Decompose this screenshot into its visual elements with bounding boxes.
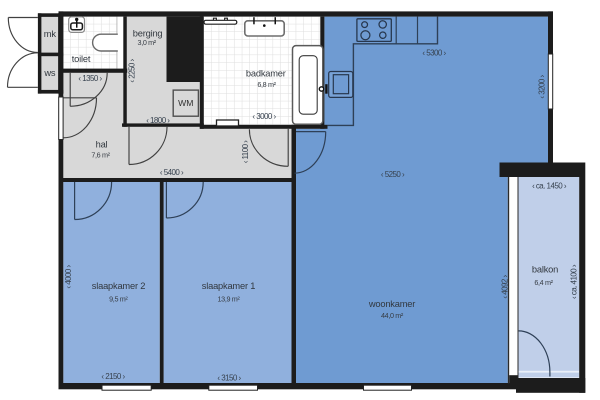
svg-text:‹ 5300 ›: ‹ 5300 › [422, 49, 446, 58]
svg-text:‹ 3000 ›: ‹ 3000 › [252, 112, 276, 121]
svg-text:‹ 3150 ›: ‹ 3150 › [217, 373, 241, 382]
svg-text:slaapkamer 2: slaapkamer 2 [92, 281, 145, 291]
svg-text:‹ ca. 4100 ›: ‹ ca. 4100 › [570, 264, 579, 299]
svg-text:badkamer: badkamer [246, 69, 286, 79]
svg-text:‹ 1350 ›: ‹ 1350 › [78, 74, 102, 83]
svg-text:WM: WM [178, 98, 193, 108]
svg-text:‹ 4092 ›: ‹ 4092 › [500, 275, 509, 299]
svg-text:balkon: balkon [532, 265, 558, 275]
svg-text:berging: berging [133, 28, 163, 38]
svg-text:ws: ws [43, 68, 56, 78]
svg-text:‹ ca. 1450 ›: ‹ ca. 1450 › [532, 182, 567, 191]
svg-text:44,0 m²: 44,0 m² [381, 311, 404, 320]
svg-text:‹ 2150 ›: ‹ 2150 › [101, 372, 125, 381]
svg-text:hal: hal [96, 140, 108, 150]
svg-text:mk: mk [44, 29, 57, 39]
svg-text:3,0 m²: 3,0 m² [138, 38, 157, 47]
svg-text:woonkamer: woonkamer [368, 299, 415, 309]
svg-text:13,9 m²: 13,9 m² [218, 294, 241, 303]
svg-text:‹ 1800 ›: ‹ 1800 › [146, 116, 170, 125]
svg-text:‹ 2250 ›: ‹ 2250 › [128, 59, 137, 83]
svg-text:‹ 4000 ›: ‹ 4000 › [64, 265, 73, 289]
svg-text:‹ 5250 ›: ‹ 5250 › [381, 170, 405, 179]
svg-text:6,4 m²: 6,4 m² [534, 278, 553, 287]
svg-text:‹ 1100 ›: ‹ 1100 › [241, 140, 250, 163]
svg-text:toilet: toilet [72, 54, 91, 64]
svg-text:6,8 m²: 6,8 m² [257, 80, 276, 89]
svg-text:‹ 3200 ›: ‹ 3200 › [537, 75, 546, 99]
svg-text:9,5 m²: 9,5 m² [109, 294, 128, 303]
svg-text:slaapkamer 1: slaapkamer 1 [202, 281, 255, 291]
svg-text:‹ 5400 ›: ‹ 5400 › [160, 168, 184, 177]
svg-text:7,6 m²: 7,6 m² [91, 150, 110, 159]
